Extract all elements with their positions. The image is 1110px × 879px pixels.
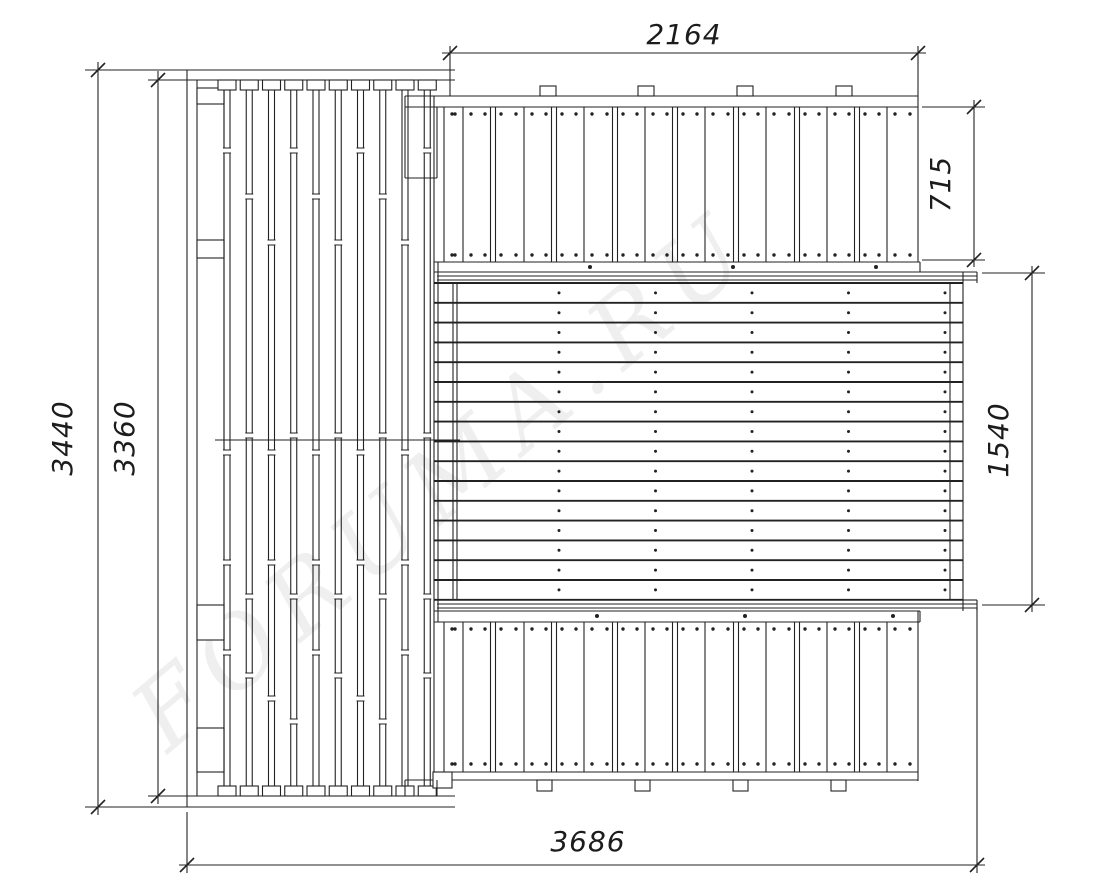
dim-right-middle-label: 1540 bbox=[982, 402, 1015, 477]
plan-canvas: FORUMA.RU 2164 715 1540 3440 3360 3686 bbox=[0, 0, 1110, 879]
dim-left-inner-label: 3360 bbox=[108, 400, 141, 475]
dim-left-outer-label: 3440 bbox=[46, 400, 79, 475]
dim-top-width-label: 2164 bbox=[646, 18, 721, 51]
dim-bottom-label: 3686 bbox=[550, 825, 625, 858]
technical-drawing: FORUMA.RU 2164 715 1540 3440 3360 3686 bbox=[0, 0, 1110, 879]
dimension-lines bbox=[91, 46, 1045, 873]
dim-right-top-label: 715 bbox=[924, 156, 957, 212]
bottom-deck-section bbox=[405, 611, 918, 796]
